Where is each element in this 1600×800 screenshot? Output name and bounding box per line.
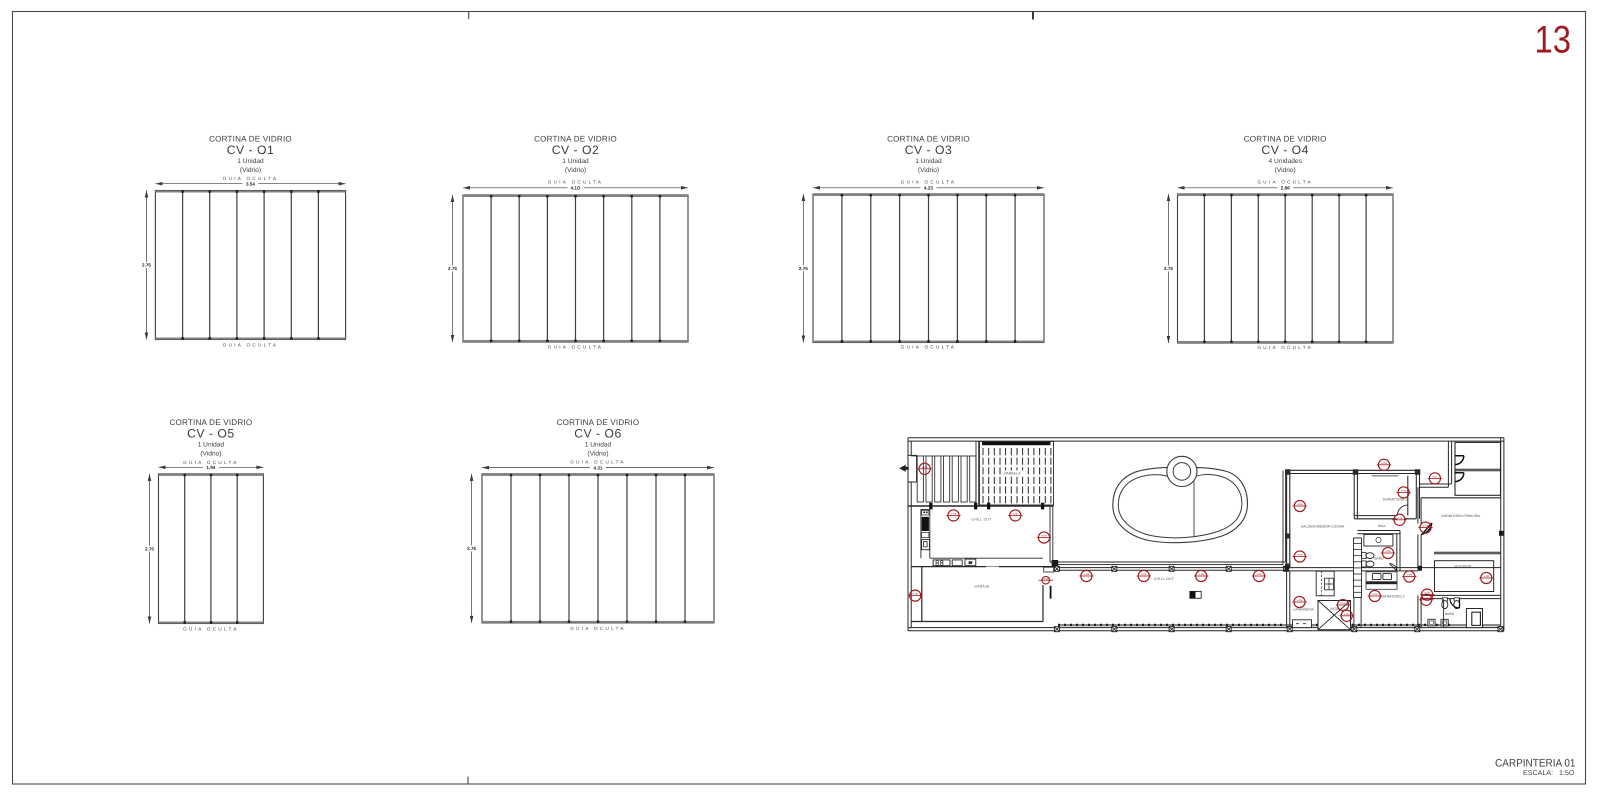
svg-text:2.76: 2.76: [799, 266, 808, 271]
svg-text:2.88: 2.88: [1281, 186, 1290, 191]
svg-text:V-O8: V-O8: [1297, 554, 1303, 557]
svg-text:BAÑO: BAÑO: [1445, 612, 1455, 616]
svg-text:ESCALA: 1:5O: ESCALA: 1:5O: [1523, 770, 1575, 777]
svg-text:V-O8: V-O8: [1381, 462, 1387, 465]
svg-text:V-O8: V-O8: [1256, 573, 1262, 576]
svg-text:(Vidrio): (Vidrio): [565, 167, 586, 174]
svg-text:V-O8: V-O8: [922, 466, 928, 469]
svg-text:2.76: 2.76: [448, 266, 457, 271]
svg-text:GUIA OCULTA: GUIA OCULTA: [901, 180, 957, 185]
svg-text:V-O8: V-O8: [1423, 525, 1429, 528]
svg-text:V-O8: V-O8: [1198, 573, 1204, 576]
svg-text:BAÑO: BAÑO: [1374, 556, 1384, 560]
svg-text:GUIA OCULTA: GUIA OCULTA: [1257, 180, 1313, 185]
svg-text:13: 13: [1535, 19, 1572, 62]
svg-text:2.76: 2.76: [467, 546, 476, 551]
svg-text:V-O8: V-O8: [1141, 573, 1147, 576]
svg-text:2.76: 2.76: [1164, 266, 1173, 271]
svg-text:CV - O1: CV - O1: [227, 143, 275, 157]
svg-text:(Vidrio): (Vidrio): [918, 167, 939, 174]
svg-text:CHILL OUT: CHILL OUT: [1154, 577, 1174, 581]
svg-text:V-O8: V-O8: [1041, 535, 1047, 538]
svg-text:V-O8: V-O8: [912, 593, 918, 596]
svg-text:(Vidrio): (Vidrio): [587, 450, 608, 457]
svg-text:GUIA OCULTA: GUIA OCULTA: [901, 345, 957, 350]
svg-text:GUIA OCULTA: GUIA OCULTA: [548, 180, 604, 185]
svg-text:V-O8: V-O8: [1340, 602, 1346, 605]
svg-text:SALON/COMEDOR-COCINA: SALON/COMEDOR-COCINA: [1301, 524, 1345, 528]
svg-text:GUIA OCULTA: GUIA OCULTA: [183, 627, 239, 632]
svg-text:(Vidrio): (Vidrio): [240, 167, 261, 174]
svg-text:4.1O: 4.1O: [571, 186, 581, 191]
svg-text:CARPINTERIA 01: CARPINTERIA 01: [1495, 758, 1576, 770]
svg-text:CV - O3: CV - O3: [905, 143, 953, 157]
svg-text:1 Unidad: 1 Unidad: [915, 158, 942, 165]
svg-text:1 Unidad: 1 Unidad: [562, 158, 589, 165]
svg-text:1.94: 1.94: [206, 465, 215, 470]
svg-text:(Vidrio): (Vidrio): [200, 450, 221, 457]
svg-text:GUIA OCULTA: GUIA OCULTA: [548, 345, 604, 350]
svg-text:V-O8: V-O8: [1385, 550, 1391, 553]
svg-text:CV - O4: CV - O4: [1261, 143, 1309, 157]
svg-text:V-O8: V-O8: [1423, 597, 1429, 600]
svg-text:PARRILLA: PARRILLA: [1004, 471, 1021, 475]
svg-text:GUIA OCULTA: GUIA OCULTA: [570, 626, 626, 631]
svg-text:V-O8: V-O8: [1432, 476, 1438, 479]
svg-text:V-O8: V-O8: [1401, 490, 1407, 493]
svg-text:1 Unidad: 1 Unidad: [198, 442, 225, 449]
svg-text:1 Unidad: 1 Unidad: [237, 158, 264, 165]
svg-text:3.54: 3.54: [246, 181, 255, 186]
svg-text:V-O8: V-O8: [1043, 577, 1049, 580]
svg-text:CV - O6: CV - O6: [574, 427, 622, 441]
svg-text:DORMITORIO PRINCIPAL: DORMITORIO PRINCIPAL: [1441, 514, 1481, 518]
svg-text:HALL: HALL: [1378, 524, 1386, 528]
svg-text:LAVANDERIA: LAVANDERIA: [1293, 607, 1314, 611]
svg-text:1 Unidad: 1 Unidad: [585, 442, 612, 449]
svg-text:V-O8: V-O8: [1013, 513, 1019, 516]
svg-text:V-O8: V-O8: [951, 513, 957, 516]
svg-text:(Vidrio): (Vidrio): [1275, 167, 1296, 174]
svg-text:CHILL OUT: CHILL OUT: [971, 518, 991, 522]
svg-text:GUIA OCULTA: GUIA OCULTA: [570, 460, 626, 465]
svg-text:GARAJE: GARAJE: [974, 584, 990, 588]
svg-text:V-O8: V-O8: [1407, 574, 1413, 577]
svg-text:V-O8: V-O8: [1484, 575, 1490, 578]
svg-text:GUIA OCULTA: GUIA OCULTA: [1257, 345, 1313, 350]
svg-text:CV - O5: CV - O5: [187, 427, 235, 441]
svg-text:4 Unidades: 4 Unidades: [1269, 158, 1303, 165]
svg-text:V-O8: V-O8: [1297, 599, 1303, 602]
svg-text:4.23: 4.23: [924, 186, 933, 191]
svg-text:V-O8: V-O8: [1372, 593, 1378, 596]
svg-text:2.76: 2.76: [142, 263, 151, 268]
svg-text:V-O8: V-O8: [1084, 573, 1090, 576]
svg-text:GUIA OCULTA: GUIA OCULTA: [223, 343, 279, 348]
svg-text:V-O8: V-O8: [1397, 517, 1403, 520]
svg-text:V-O8: V-O8: [1297, 503, 1303, 506]
svg-text:V-O8: V-O8: [1344, 613, 1350, 616]
svg-text:2.76: 2.76: [145, 546, 154, 551]
svg-text:4.31: 4.31: [594, 465, 603, 470]
svg-text:CV - O2: CV - O2: [552, 143, 600, 157]
svg-text:DORMITORIO 3: DORMITORIO 3: [1380, 595, 1404, 599]
